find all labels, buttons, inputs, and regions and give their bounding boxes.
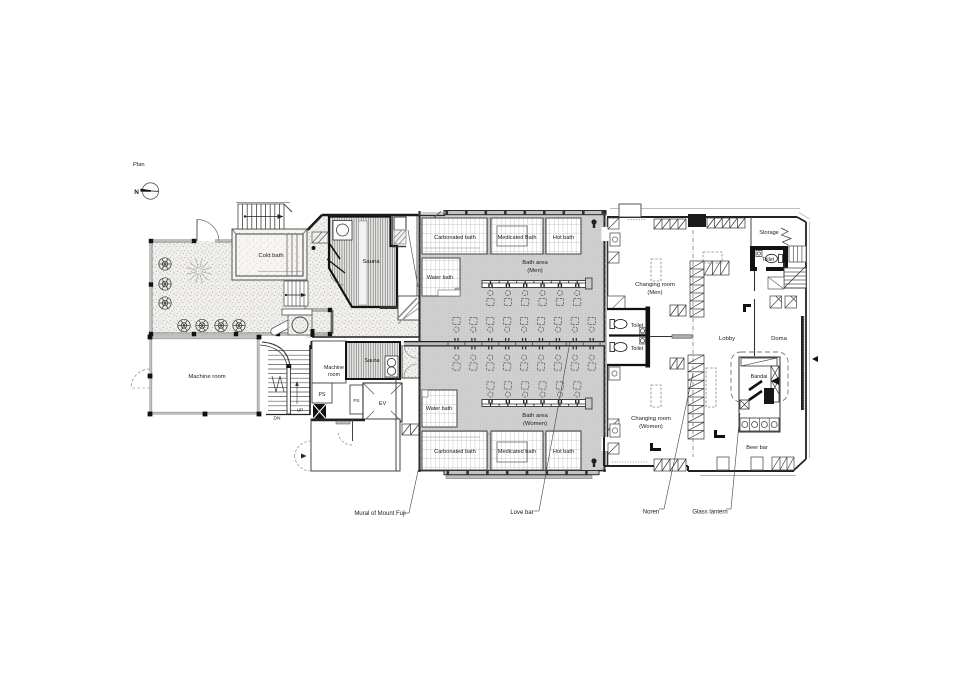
svg-text:Sauna: Sauna: [364, 358, 379, 364]
svg-text:Hot bath: Hot bath: [553, 449, 574, 455]
svg-text:Carbonated bath: Carbonated bath: [434, 235, 476, 241]
svg-text:Water bath: Water bath: [427, 275, 453, 281]
svg-text:Bath area: Bath area: [522, 413, 548, 419]
svg-text:Water bath: Water bath: [426, 406, 452, 412]
svg-text:Changing room: Changing room: [631, 416, 671, 422]
svg-text:Cold bath: Cold bath: [258, 253, 283, 259]
svg-text:Plan: Plan: [133, 162, 145, 168]
svg-text:Lobby: Lobby: [719, 336, 735, 342]
svg-text:Hot bath: Hot bath: [553, 235, 574, 241]
svg-text:(Women): (Women): [523, 421, 547, 427]
svg-text:Storage: Storage: [759, 230, 779, 236]
svg-text:Glass lantern: Glass lantern: [692, 510, 727, 516]
svg-text:Love bar: Love bar: [510, 510, 533, 516]
svg-text:Sauna: Sauna: [362, 259, 380, 265]
svg-text:Medicated bath: Medicated bath: [498, 449, 536, 455]
svg-text:(Men): (Men): [647, 290, 662, 296]
svg-text:Toilet: Toilet: [631, 346, 644, 352]
svg-text:Carbonated bath: Carbonated bath: [434, 449, 476, 455]
svg-text:Machine: Machine: [324, 365, 344, 371]
svg-text:N: N: [134, 189, 139, 196]
svg-text:Machine room: Machine room: [188, 374, 225, 380]
svg-text:Doma: Doma: [771, 336, 787, 342]
svg-text:Bandai: Bandai: [751, 374, 768, 380]
svg-text:(Women): (Women): [639, 424, 663, 430]
svg-text:room: room: [328, 372, 341, 378]
svg-text:Noren: Noren: [643, 510, 659, 516]
svg-text:Toilet: Toilet: [762, 257, 775, 263]
svg-text:DN: DN: [274, 416, 281, 422]
svg-text:(Men): (Men): [527, 268, 542, 274]
svg-text:EV: EV: [379, 401, 387, 407]
svg-text:UP: UP: [297, 408, 304, 414]
svg-text:Medicated Bath: Medicated Bath: [498, 235, 537, 241]
svg-text:PS: PS: [353, 398, 359, 403]
svg-text:PS: PS: [319, 392, 326, 398]
svg-text:Changing room: Changing room: [635, 282, 675, 288]
svg-text:Bath area: Bath area: [522, 260, 548, 266]
svg-text:Beer bar: Beer bar: [746, 445, 768, 451]
svg-text:Mural of Mount Fuji: Mural of Mount Fuji: [354, 511, 405, 517]
